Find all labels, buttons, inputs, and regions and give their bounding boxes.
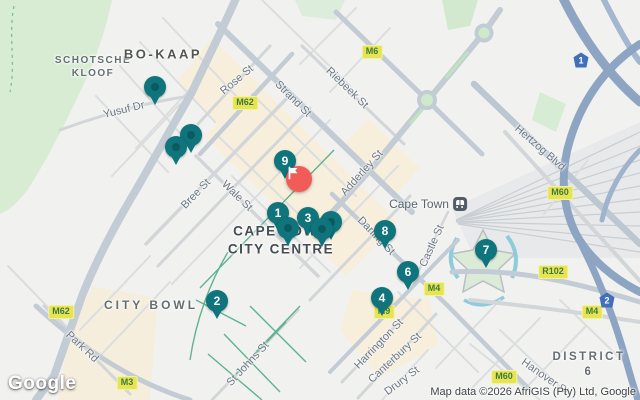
train-station-icon [453,197,467,211]
place-pin[interactable] [144,76,166,98]
route-badge: M62 [232,96,258,110]
area-label-district-6: DISTRICT 6 [552,350,625,380]
route-badge: M62 [48,305,74,319]
place-pin[interactable] [165,136,187,158]
map-attribution: Map data ©2026 AfriGIS (Pty) Ltd, Google [430,386,636,398]
marker-number: 1 [275,206,282,220]
station-label: Cape Town [389,197,449,211]
numbered-marker-6[interactable]: 6 [397,261,419,283]
numbered-marker-7[interactable]: 7 [475,239,497,261]
place-pin[interactable] [311,218,333,240]
numbered-marker-4[interactable]: 4 [371,287,393,309]
route-badge: M3 [117,376,138,390]
marker-number: 4 [379,291,386,305]
route-badge: M60 [547,186,573,200]
area-label-city-bowl: CITY BOWL [104,298,198,314]
marker-number: 2 [214,294,221,308]
place-pin[interactable] [277,217,299,239]
area-label-bo-kaap: BO-KAAP [124,47,202,64]
route-badge: M6 [362,45,383,59]
marker-number: 8 [382,224,389,238]
route-badge: M4 [582,305,603,319]
marker-number: 7 [483,243,490,257]
flag-icon [286,166,300,180]
google-logo[interactable]: Google [8,373,76,395]
numbered-marker-2[interactable]: 2 [206,290,228,312]
area-label-schotsche-kloof: SCHOTSCHE KLOOF [55,54,131,80]
map-canvas[interactable]: Yusuf Dr Rose St Strand St Riebeek St Ad… [0,0,640,400]
route-badge: R102 [538,265,568,279]
route-badge: M60 [491,370,517,384]
poi-cape-town-station[interactable]: Cape Town [389,197,467,211]
numbered-marker-8[interactable]: 8 [374,220,396,242]
route-badge: M4 [424,282,445,296]
start-flag-marker[interactable] [286,166,312,192]
marker-number: 3 [305,211,312,225]
marker-number: 6 [405,265,412,279]
